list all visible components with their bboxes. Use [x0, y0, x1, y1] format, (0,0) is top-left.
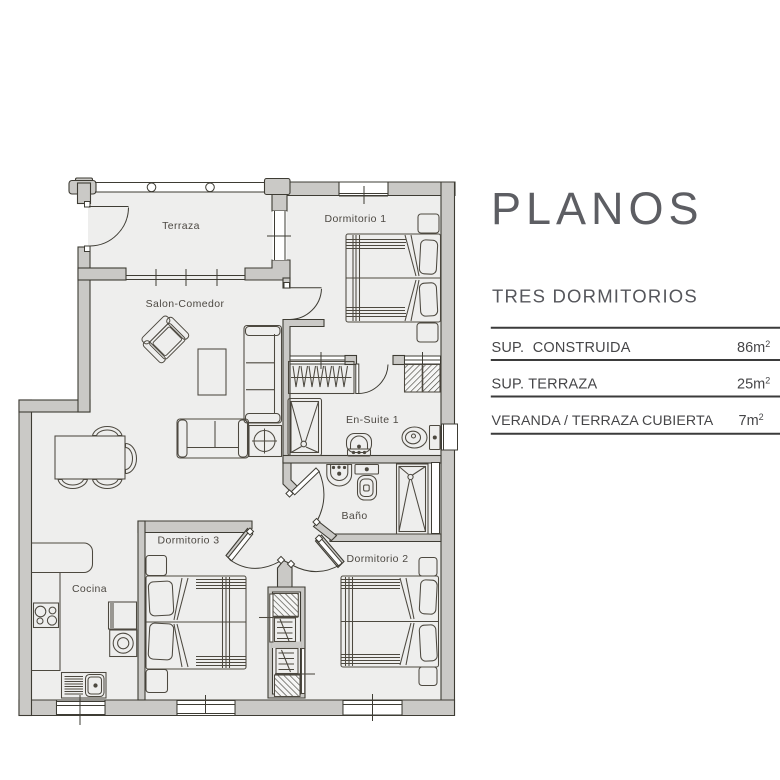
svg-text:7m2: 7m2 — [739, 412, 764, 429]
svg-text:Dormitorio 3: Dormitorio 3 — [158, 535, 220, 547]
svg-text:SUP. CONSTRUIDA: SUP. CONSTRUIDA — [492, 340, 631, 356]
svg-text:Baño: Baño — [341, 510, 367, 522]
svg-text:VERANDA / TERRAZA CUBIERTA: VERANDA / TERRAZA CUBIERTA — [492, 413, 714, 429]
svg-text:PLANOS: PLANOS — [491, 183, 704, 234]
svg-text:Dormitorio 2: Dormitorio 2 — [347, 553, 409, 565]
svg-text:Dormitorio 1: Dormitorio 1 — [325, 213, 387, 225]
svg-text:Terraza: Terraza — [162, 220, 200, 232]
svg-text:Salon-Comedor: Salon-Comedor — [146, 298, 225, 310]
svg-text:86m2: 86m2 — [737, 339, 770, 356]
svg-text:25m2: 25m2 — [737, 375, 770, 392]
svg-text:En-Suite 1: En-Suite 1 — [346, 414, 399, 426]
svg-text:Cocina: Cocina — [72, 583, 107, 595]
svg-text:TRES DORMITORIOS: TRES DORMITORIOS — [492, 286, 698, 307]
svg-text:SUP. TERRAZA: SUP. TERRAZA — [492, 376, 598, 392]
